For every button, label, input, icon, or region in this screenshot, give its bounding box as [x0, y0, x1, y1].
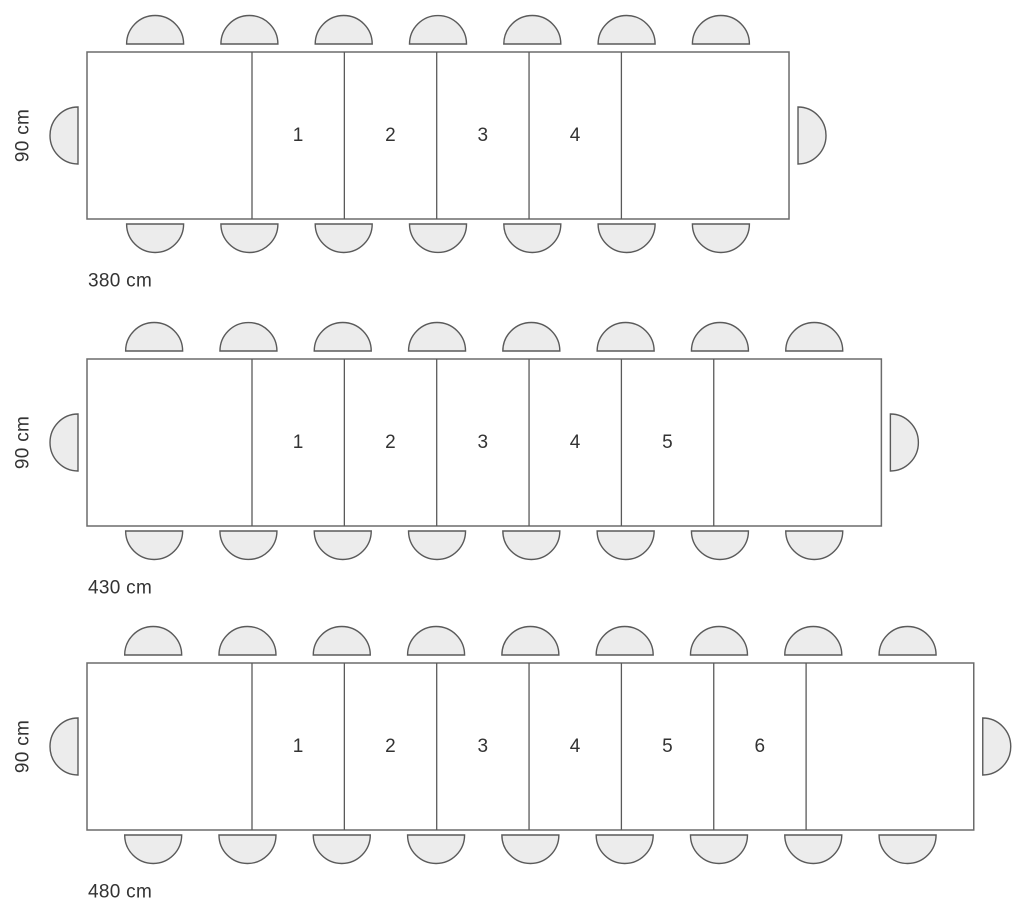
chair-right: [890, 414, 918, 471]
chair-bottom: [315, 224, 372, 253]
chair-bottom: [313, 835, 370, 864]
table-depth-label: 90 cm: [13, 109, 34, 162]
leaf-number: 5: [662, 432, 673, 453]
table-length-label: 480 cm: [88, 882, 152, 903]
table-depth-label: 90 cm: [13, 416, 34, 469]
leaf-number: 4: [570, 125, 581, 146]
chair-top: [221, 16, 278, 44]
chair-bottom: [598, 224, 655, 253]
chair-top: [692, 16, 749, 44]
chair-bottom: [691, 531, 748, 560]
table-length-label: 380 cm: [88, 271, 152, 292]
table-surface: [87, 663, 974, 830]
leaf-number: 5: [662, 736, 673, 757]
chair-bottom: [220, 531, 277, 559]
chair-bottom: [879, 835, 936, 864]
leaf-number: 2: [385, 432, 396, 453]
chair-bottom: [692, 224, 749, 253]
table-length-label: 430 cm: [88, 578, 152, 599]
leaf-number: 4: [570, 736, 581, 757]
chair-bottom: [127, 224, 184, 253]
chair-bottom: [504, 224, 561, 253]
chair-bottom: [597, 531, 654, 560]
chair-top: [502, 627, 559, 656]
extendable-table-380: 1234380 cm90 cm: [13, 15, 827, 291]
chair-bottom: [596, 835, 653, 864]
leaf-number: 2: [385, 125, 396, 146]
chair-bottom: [126, 531, 183, 560]
leaf-number: 3: [477, 432, 488, 453]
table-surface: [87, 52, 789, 219]
leaf-number: 6: [754, 736, 765, 757]
chair-left: [50, 718, 78, 775]
extendable-table-size-diagrams: 1234380 cm90 cm12345430 cm90 cm123456480…: [0, 0, 1020, 920]
extendable-table-480: 123456480 cm90 cm: [13, 626, 1011, 902]
chair-top: [219, 626, 276, 655]
chair-top: [126, 323, 183, 352]
chair-top: [410, 16, 467, 44]
chair-bottom: [408, 835, 465, 864]
chair-bottom: [409, 531, 466, 560]
chair-bottom: [125, 835, 182, 864]
floorplan-canvas: 1234380 cm90 cm12345430 cm90 cm123456480…: [0, 0, 1020, 920]
leaf-number: 1: [293, 736, 304, 757]
chair-right: [983, 718, 1011, 775]
chair-top: [504, 15, 561, 44]
chair-top: [314, 323, 371, 352]
chair-top: [596, 627, 653, 656]
chair-bottom: [410, 224, 467, 252]
chair-top: [597, 323, 654, 352]
chair-left: [50, 414, 78, 471]
chair-top: [315, 16, 372, 44]
table-depth-label: 90 cm: [13, 720, 34, 773]
chair-bottom: [219, 835, 276, 864]
chair-bottom: [503, 531, 560, 560]
chair-top: [409, 323, 466, 352]
chair-top: [125, 627, 182, 656]
leaf-number: 4: [570, 432, 581, 453]
chair-left: [50, 107, 78, 164]
chair-top: [598, 16, 655, 44]
chair-top: [220, 323, 277, 351]
leaf-number: 1: [293, 432, 304, 453]
leaf-number: 1: [293, 125, 304, 146]
chair-bottom: [221, 224, 278, 253]
chair-top: [690, 627, 747, 656]
leaf-number: 3: [477, 125, 488, 146]
chair-top: [785, 627, 842, 656]
leaf-number: 2: [385, 736, 396, 757]
chair-bottom: [690, 835, 747, 864]
chair-top: [313, 627, 370, 656]
extendable-table-430: 12345430 cm90 cm: [13, 323, 919, 599]
leaf-number: 3: [477, 736, 488, 757]
chair-bottom: [314, 531, 371, 560]
chair-bottom: [785, 835, 842, 864]
chair-top: [691, 323, 748, 352]
chair-top: [879, 627, 936, 656]
chair-bottom: [786, 531, 843, 560]
chair-bottom: [502, 835, 559, 864]
chair-top: [786, 323, 843, 352]
chair-right: [798, 107, 826, 164]
chair-top: [503, 323, 560, 352]
chair-top: [408, 627, 465, 656]
chair-top: [127, 16, 184, 44]
